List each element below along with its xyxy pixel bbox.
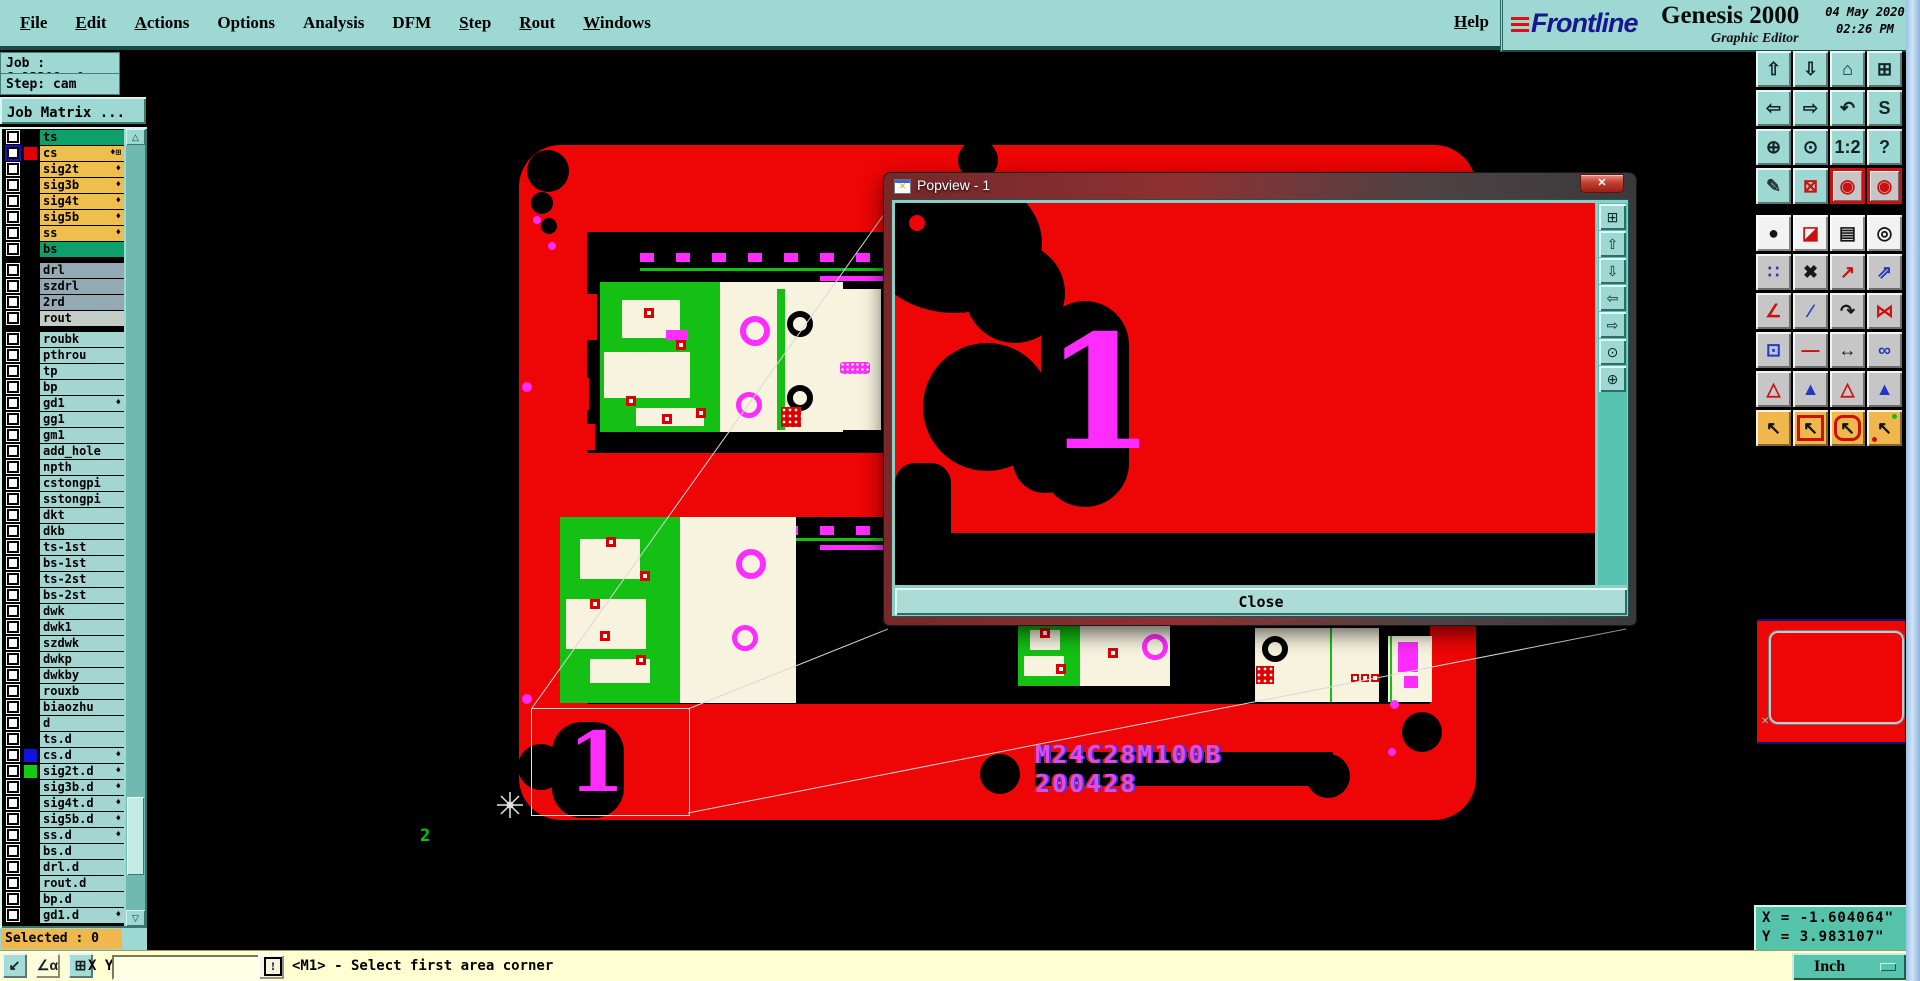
layer-row[interactable]: sig5b ♦	[2, 209, 124, 225]
layer-row[interactable]: d	[2, 715, 124, 731]
menu-item[interactable]: Rout	[505, 1, 569, 45]
layer-checkbox[interactable]	[7, 557, 19, 569]
pan-right-button[interactable]: ⇨	[1793, 90, 1828, 126]
layer-marker-icon: ♦	[116, 162, 124, 177]
layer-name[interactable]: sig3b.d ♦	[40, 780, 124, 795]
layer-color-swatch	[24, 147, 37, 160]
scroll-down-icon[interactable]: ▽	[126, 910, 145, 926]
layer-checkbox[interactable]	[7, 861, 19, 873]
layer-name-text: 2rd	[43, 295, 65, 310]
home-view-button[interactable]: ⌂	[1830, 51, 1865, 87]
toolbar-icon: ↷	[1840, 295, 1855, 327]
layer-row[interactable]: dkt	[2, 507, 124, 523]
status-button-icon: ∠α	[37, 957, 58, 973]
layer-checkbox[interactable]	[7, 637, 19, 649]
layer-name[interactable]: gm1	[40, 428, 124, 443]
layer-row[interactable]: sig5b.d ♦	[2, 811, 124, 827]
layer-checkbox[interactable]	[7, 509, 19, 521]
layer-row[interactable]: bs	[2, 241, 124, 257]
layer-color-swatch	[24, 195, 37, 208]
layer-name[interactable]: add_hole	[40, 444, 124, 459]
layer-checkbox[interactable]	[7, 717, 19, 729]
serpentine-button[interactable]: S	[1867, 90, 1902, 126]
layer-name-text: gm1	[43, 428, 65, 443]
layer-color-swatch	[24, 461, 37, 474]
layer-checkbox[interactable]	[7, 195, 19, 207]
layer-name-text: sig2t.d	[43, 764, 94, 779]
layer-name[interactable]: d	[40, 716, 124, 731]
layer-name[interactable]: gd1.d ♦	[40, 908, 124, 923]
window-xy-button[interactable]: ⊞	[1867, 51, 1902, 87]
popview-zoom-in-button[interactable]: ⊙	[1599, 339, 1626, 365]
layer-name-text: cs.d	[43, 748, 72, 763]
layer-name-text: add_hole	[43, 444, 101, 459]
layer-name-text: ss.d	[43, 828, 72, 843]
layer-color-swatch	[24, 829, 37, 842]
scroll-thumb[interactable]	[127, 797, 144, 875]
layer-name[interactable]: drl	[40, 263, 124, 278]
layer-name[interactable]: ts.d	[40, 732, 124, 747]
popview-zoom-view[interactable]: 1	[895, 203, 1595, 585]
menu-bar: File Edit Actions Options Analysis DFM S…	[0, 0, 1500, 46]
layer-row[interactable]: tp	[2, 363, 124, 379]
layer-name[interactable]: sig4t ♦	[40, 194, 124, 209]
toolbar-icon: ✎	[1766, 170, 1781, 202]
step-name: Step: cam	[1, 74, 119, 92]
layer-name[interactable]: drl.d	[40, 860, 124, 875]
layer-row[interactable]: sig4t ♦	[2, 193, 124, 209]
layer-name[interactable]: ss ♦	[40, 226, 124, 241]
layer-scrollbar[interactable]: △ ▽	[126, 129, 145, 926]
layer-row[interactable]: dkb	[2, 523, 124, 539]
zoom-fit-button[interactable]: ⊕	[1756, 129, 1791, 165]
select-single-button[interactable]: ↖	[1756, 410, 1791, 446]
layer-name[interactable]: pthrou	[40, 348, 124, 363]
layer-color-swatch	[24, 477, 37, 490]
net-lights-a-button[interactable]: ◉	[1830, 168, 1865, 204]
layer-name[interactable]: bp.d	[40, 892, 124, 907]
popview-marker-1: 1	[1045, 315, 1155, 473]
layer-name[interactable]: bs.d	[40, 844, 124, 859]
popview-side-icon: ⊕	[1607, 371, 1619, 387]
layer-checkbox[interactable]	[7, 211, 19, 223]
layer-row[interactable]: dwk	[2, 603, 124, 619]
layer-color-swatch	[24, 429, 37, 442]
scroll-up-icon[interactable]: △	[126, 129, 145, 145]
layer-name[interactable]: cstongpi	[40, 476, 124, 491]
layer-name[interactable]: sig4t.d ♦	[40, 796, 124, 811]
layer-color-swatch	[24, 264, 37, 277]
alert-icon: !	[264, 957, 282, 976]
layer-row[interactable]: sig2t ♦	[2, 161, 124, 177]
layer-checkbox[interactable]	[7, 493, 19, 505]
angle-measure-button[interactable]: ∠	[1756, 293, 1791, 329]
layer-row[interactable]: pthrou	[2, 347, 124, 363]
triangle-outline-button[interactable]: ▲	[1793, 371, 1828, 407]
layer-name[interactable]: rout.d	[40, 876, 124, 891]
layer-row[interactable]: rouxb	[2, 683, 124, 699]
layer-color-swatch	[24, 621, 37, 634]
layer-row[interactable]: bs-1st	[2, 555, 124, 571]
layer-row[interactable]: cstongpi	[2, 475, 124, 491]
layer-name[interactable]: tp	[40, 364, 124, 379]
layer-checkbox[interactable]	[7, 445, 19, 457]
layer-name[interactable]: gd1 ♦	[40, 396, 124, 411]
pan-left-button[interactable]: ⇦	[1756, 90, 1791, 126]
layer-name-text: ss	[43, 226, 57, 241]
layer-checkbox[interactable]	[7, 179, 19, 191]
toolbar-icon: ⇗	[1877, 256, 1892, 288]
layer-row[interactable]: ss ♦	[2, 225, 124, 241]
layer-row[interactable]: ts-2st	[2, 571, 124, 587]
layer-name-text: bp.d	[43, 892, 72, 907]
layer-name-text: dkb	[43, 524, 65, 539]
layer-name[interactable]: ts	[40, 130, 124, 145]
xy-input[interactable]	[112, 955, 264, 980]
layer-name[interactable]: ts-2st	[40, 572, 124, 587]
toolbar-icon: ∞	[1878, 334, 1891, 366]
layer-name-text: szdwk	[43, 636, 79, 651]
job-name-box: Job : 6s13308sa0	[0, 52, 120, 74]
layer-name-text: drl.d	[43, 860, 79, 875]
layer-row[interactable]: gd1 ♦	[2, 395, 124, 411]
popview-side-icon: ⇦	[1607, 290, 1619, 306]
layer-row[interactable]: bs-2st	[2, 587, 124, 603]
toolbar-icon: ∷	[1768, 256, 1779, 288]
layer-name[interactable]: dwk1	[40, 620, 124, 635]
select-poly-button[interactable]: ↖	[1830, 410, 1865, 446]
layer-name-text: biaozhu	[43, 700, 94, 715]
layer-color-swatch	[24, 637, 37, 650]
layer-name[interactable]: dkb	[40, 524, 124, 539]
layer-checkbox[interactable]	[7, 349, 19, 361]
menu-item[interactable]: Options	[203, 1, 289, 45]
overview-viewport-rect[interactable]	[1769, 631, 1904, 724]
layer-name[interactable]: rout	[40, 311, 124, 326]
layer-color-swatch	[24, 813, 37, 826]
toolbar-icon: ?	[1879, 131, 1890, 163]
layer-checkbox[interactable]	[7, 701, 19, 713]
layer-checkbox[interactable]	[7, 381, 19, 393]
layer-name[interactable]: sig2t.d ♦	[40, 764, 124, 779]
menu-item[interactable]: Edit	[61, 1, 120, 45]
zoom-center-button[interactable]: ⊙	[1793, 129, 1828, 165]
popview-close-x-button[interactable]: ✕	[1580, 174, 1624, 193]
triangle-open-button[interactable]: △	[1830, 371, 1865, 407]
layer-marker-icon: ♦	[116, 178, 124, 193]
menu-item[interactable]: Analysis	[289, 1, 378, 45]
layer-color-swatch	[24, 733, 37, 746]
layer-name[interactable]: npth	[40, 460, 124, 475]
layer-panel: ts cs ♦⊞ sig2	[0, 127, 147, 928]
triangle-fill-button[interactable]: △	[1756, 371, 1791, 407]
layer-row[interactable]: npth	[2, 459, 124, 475]
alert-button[interactable]: !	[258, 954, 284, 979]
layer-name[interactable]: ss.d ♦	[40, 828, 124, 843]
touching-shapes-button[interactable]: ∞	[1867, 332, 1902, 368]
layer-checkbox[interactable]	[7, 227, 19, 239]
angle-snap-button[interactable]: ∠α	[35, 953, 60, 978]
pad-resize-button[interactable]: ⊡	[1756, 332, 1791, 368]
toolbar-icon: ▲	[1802, 373, 1820, 405]
layer-name[interactable]: dwkby	[40, 668, 124, 683]
popview-close-button[interactable]: Close	[895, 588, 1627, 615]
layer-checkbox[interactable]	[7, 685, 19, 697]
delete-button[interactable]: ✖	[1793, 254, 1828, 290]
layer-checkbox[interactable]	[7, 333, 19, 345]
layer-name[interactable]: sig2t ♦	[40, 162, 124, 177]
layer-name-text: gd1.d	[43, 908, 79, 923]
layer-color-swatch	[24, 557, 37, 570]
triangle-base-button[interactable]: ▲	[1867, 371, 1902, 407]
layer-checkbox[interactable]	[7, 893, 19, 905]
clipboard-down-button[interactable]: ⇩	[1793, 51, 1828, 87]
layer-row[interactable]: ts	[2, 129, 124, 145]
layer-checkbox[interactable]	[7, 605, 19, 617]
layer-color-swatch	[24, 701, 37, 714]
layer-row[interactable]: rout	[2, 310, 124, 326]
layer-name[interactable]: bs-1st	[40, 556, 124, 571]
layer-color-swatch	[24, 227, 37, 240]
layer-row[interactable]: bp	[2, 379, 124, 395]
layer-row[interactable]: ts-1st	[2, 539, 124, 555]
mirror-button[interactable]: ⋈	[1867, 293, 1902, 329]
copy-button[interactable]: ↗	[1830, 254, 1865, 290]
genesis-2000-window: 1 M24C28M100B 200428 2 ✕ Popview - 1 ✕	[0, 0, 1920, 981]
resize-mode-button[interactable]: ↙	[2, 953, 27, 978]
layer-row[interactable]: drl	[2, 262, 124, 278]
toolbar-icon: △	[1841, 373, 1855, 405]
layer-checkbox[interactable]	[7, 877, 19, 889]
layer-row[interactable]: cs.d ♦	[2, 747, 124, 763]
layer-checkbox[interactable]	[7, 797, 19, 809]
layer-row[interactable]: add_hole	[2, 443, 124, 459]
layer-checkbox[interactable]	[7, 477, 19, 489]
layer-name[interactable]: biaozhu	[40, 700, 124, 715]
layer-color-swatch	[24, 445, 37, 458]
layer-checkbox[interactable]	[7, 845, 19, 857]
scale-1-2-button[interactable]: 1:2	[1830, 129, 1865, 165]
menu-item[interactable]: Windows	[569, 1, 665, 45]
layer-name[interactable]: sig5b.d ♦	[40, 812, 124, 827]
layer-row[interactable]: szdwk	[2, 635, 124, 651]
layer-name[interactable]: bs	[40, 242, 124, 257]
layer-checkbox[interactable]	[7, 589, 19, 601]
layer-color-swatch	[24, 280, 37, 293]
layer-name-text: dwkby	[43, 668, 79, 683]
select-frame-button[interactable]: ↖	[1793, 410, 1828, 446]
toolbar-icon: ⊡	[1766, 334, 1781, 366]
layer-name[interactable]: 2rd	[40, 295, 124, 310]
layer-row[interactable]: sig3b.d ♦	[2, 779, 124, 795]
layer-name[interactable]: cs ♦⊞	[40, 146, 124, 161]
layer-checkbox[interactable]	[7, 163, 19, 175]
menu-item[interactable]: Step	[445, 1, 505, 45]
measure-gap-button[interactable]: ↔	[1830, 332, 1865, 368]
layer-color-swatch	[24, 211, 37, 224]
layer-checkbox[interactable]	[7, 429, 19, 441]
layer-row[interactable]: roubk	[2, 331, 124, 347]
ruler-button[interactable]: ▤	[1830, 215, 1865, 251]
layer-checkbox[interactable]	[7, 296, 19, 308]
layer-row[interactable]: sstongpi	[2, 491, 124, 507]
help-mode-button[interactable]: ?	[1867, 129, 1902, 165]
popview-titlebar[interactable]: ✕ Popview - 1 ✕	[884, 173, 1636, 199]
toolbar-icon: ⊞	[1877, 53, 1892, 85]
dot-select-button[interactable]: ◎	[1867, 215, 1902, 251]
layer-color-swatch	[24, 413, 37, 426]
layer-name-text: sstongpi	[43, 492, 101, 507]
layer-row[interactable]: rout.d	[2, 875, 124, 891]
layer-row[interactable]: gm1	[2, 427, 124, 443]
layer-name[interactable]: bp	[40, 380, 124, 395]
popview-pan-left-button[interactable]: ⇦	[1599, 285, 1626, 311]
slope-button[interactable]: ∕	[1793, 293, 1828, 329]
coordinate-readout: X = -1.604064" Y = 3.983107"	[1754, 905, 1906, 952]
layer-marker-icon: ♦	[116, 194, 124, 209]
layer-checkbox[interactable]	[7, 749, 19, 761]
toolbar-icon: ⇧	[1766, 53, 1781, 85]
popview-pan-up-button[interactable]: ⇧	[1599, 231, 1626, 257]
layer-name[interactable]: szdrl	[40, 279, 124, 294]
popview-pan-right-button[interactable]: ⇨	[1599, 312, 1626, 338]
layer-checkbox[interactable]	[7, 525, 19, 537]
layer-checkbox[interactable]	[7, 264, 19, 276]
layer-checkbox[interactable]	[7, 397, 19, 409]
layer-checkbox[interactable]	[7, 573, 19, 585]
status-bar: ↙ ∠α ⊞ X Y : ! <M1> - Select first area …	[0, 950, 1906, 981]
popview-pan-down-button[interactable]: ⇩	[1599, 258, 1626, 284]
layer-color-swatch	[24, 131, 37, 144]
toolbar-icon: ⊠	[1803, 170, 1818, 202]
layer-row[interactable]: ss.d ♦	[2, 827, 124, 843]
rotate-button[interactable]: ↷	[1830, 293, 1865, 329]
toolbar-icon: ●	[1768, 217, 1779, 249]
layer-color-swatch	[24, 877, 37, 890]
layer-checkbox[interactable]	[7, 131, 19, 143]
layer-row[interactable]: bs.d	[2, 843, 124, 859]
tools-setup-button[interactable]: ✎	[1756, 168, 1791, 204]
layer-name-text: rouxb	[43, 684, 79, 699]
layer-checkbox[interactable]	[7, 147, 19, 159]
select-net-button[interactable]: ↖	[1867, 410, 1902, 446]
layer-marker-icon: ♦	[116, 748, 124, 763]
menu-item[interactable]: Actions	[121, 1, 204, 45]
layer-checkbox[interactable]	[7, 781, 19, 793]
layer-row[interactable]: szdrl	[2, 278, 124, 294]
layer-checkbox[interactable]	[7, 653, 19, 665]
layer-checkbox[interactable]	[7, 813, 19, 825]
layer-color-swatch	[24, 685, 37, 698]
popview-zoom-out-button[interactable]: ⊕	[1599, 366, 1626, 392]
layer-row[interactable]: biaozhu	[2, 699, 124, 715]
layer-checkbox[interactable]	[7, 909, 19, 921]
layer-name[interactable]: sig3b ♦	[40, 178, 124, 193]
layer-checkbox[interactable]	[7, 243, 19, 255]
clipboard-up-button[interactable]: ⇧	[1756, 51, 1791, 87]
highlight-ball-button[interactable]: ●	[1756, 215, 1791, 251]
layer-color-swatch	[24, 333, 37, 346]
toolbar-icon: ◉	[1877, 170, 1893, 202]
layer-name[interactable]: dwkp	[40, 652, 124, 667]
units-dropdown[interactable]: Inch	[1792, 953, 1906, 980]
layer-row[interactable]: ts.d	[2, 731, 124, 747]
layer-name[interactable]: dwk	[40, 604, 124, 619]
overview-navigator[interactable]: ✕	[1757, 468, 1905, 905]
layer-row[interactable]: bp.d	[2, 891, 124, 907]
popview-window-icon: ✕	[894, 179, 911, 194]
layer-checkbox[interactable]	[7, 621, 19, 633]
layer-name[interactable]: roubk	[40, 332, 124, 347]
menu-item[interactable]: DFM	[378, 1, 445, 45]
layer-name[interactable]: cs.d ♦	[40, 748, 124, 763]
chain-select-button[interactable]: ∷	[1756, 254, 1791, 290]
layer-name-text: drl	[43, 263, 65, 278]
layer-row[interactable]: gd1.d ♦	[2, 907, 124, 923]
layer-row[interactable]: cs ♦⊞	[2, 145, 124, 161]
layer-checkbox[interactable]	[7, 541, 19, 553]
toolbar-icon: ⋈	[1876, 295, 1894, 327]
layer-name[interactable]: gg1	[40, 412, 124, 427]
layer-name-text: sig5b.d	[43, 812, 94, 827]
net-lights-b-button[interactable]: ◉	[1867, 168, 1902, 204]
layer-row[interactable]: sig4t.d ♦	[2, 795, 124, 811]
layer-row[interactable]: dwkby	[2, 667, 124, 683]
layer-row[interactable]: gg1	[2, 411, 124, 427]
layer-list: ts cs ♦⊞ sig2	[2, 129, 124, 926]
layer-swap-button[interactable]: ◪	[1793, 215, 1828, 251]
stretch-line-button[interactable]: ―	[1793, 332, 1828, 368]
layer-checkbox[interactable]	[7, 733, 19, 745]
layer-name[interactable]: szdwk	[40, 636, 124, 651]
layer-name-text: ts-2st	[43, 572, 86, 587]
menu-item[interactable]: File	[6, 1, 61, 45]
probe-button[interactable]: ⊠	[1793, 168, 1828, 204]
layer-row[interactable]: dwkp	[2, 651, 124, 667]
layer-row[interactable]: dwk1	[2, 619, 124, 635]
layer-checkbox[interactable]	[7, 280, 19, 292]
layer-row[interactable]: sig3b ♦	[2, 177, 124, 193]
popview-detach-button[interactable]: ⊞	[1599, 204, 1626, 230]
move-button[interactable]: ⇗	[1867, 254, 1902, 290]
layer-checkbox[interactable]	[7, 365, 19, 377]
job-matrix-button[interactable]: Job Matrix ...	[0, 97, 146, 124]
window-edge	[1906, 0, 1920, 981]
layer-name[interactable]: sig5b ♦	[40, 210, 124, 225]
product-subtitle: Graphic Editor	[1711, 31, 1799, 47]
toolbar-icon: ―	[1802, 334, 1820, 366]
popview-title: Popview - 1	[917, 177, 990, 193]
layer-checkbox[interactable]	[7, 413, 19, 425]
previous-view-button[interactable]: ↶	[1830, 90, 1865, 126]
layer-name[interactable]: dkt	[40, 508, 124, 523]
layer-checkbox[interactable]	[7, 829, 19, 841]
layer-row[interactable]: drl.d	[2, 859, 124, 875]
layer-checkbox[interactable]	[7, 765, 19, 777]
layer-color-swatch	[24, 296, 37, 309]
layer-checkbox[interactable]	[7, 669, 19, 681]
layer-name[interactable]: bs-2st	[40, 588, 124, 603]
layer-name[interactable]: rouxb	[40, 684, 124, 699]
popview-side-icon: ⇧	[1607, 236, 1619, 252]
layer-name[interactable]: ts-1st	[40, 540, 124, 555]
layer-row[interactable]: sig2t.d ♦	[2, 763, 124, 779]
layer-row[interactable]: 2rd	[2, 294, 124, 310]
layer-checkbox[interactable]	[7, 312, 19, 324]
layer-name[interactable]: sstongpi	[40, 492, 124, 507]
toolbar-icon: ∠	[1765, 295, 1781, 327]
layer-checkbox[interactable]	[7, 461, 19, 473]
